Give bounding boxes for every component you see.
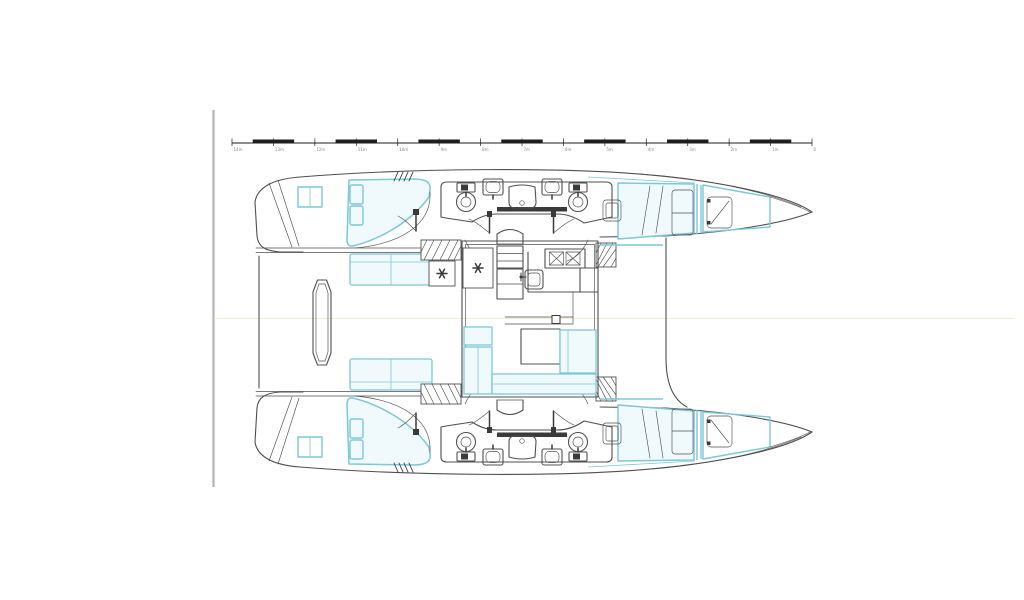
boat-floorplan-canvas: Catamaran sailboat deck and accommodatio… (0, 0, 1024, 600)
ruler-segment (501, 140, 522, 144)
ruler-label: 4m (648, 147, 655, 152)
galley-cabinets (497, 246, 523, 299)
fan-hatch (429, 261, 455, 286)
boarding-platform (313, 280, 331, 365)
ruler-label: 2m (731, 147, 738, 152)
ruler-label: 12m (316, 147, 325, 152)
aft-platform (259, 256, 331, 388)
fan-hatch (463, 248, 493, 288)
ruler-segment (750, 140, 771, 144)
half-wall (505, 292, 573, 324)
ruler-label: 3m (689, 147, 696, 152)
ruler-label: 10m (399, 147, 408, 152)
ruler-segment (336, 140, 357, 144)
ruler-segment (356, 140, 377, 144)
ruler-segment (273, 140, 294, 144)
stove-symbol (545, 249, 585, 268)
u-sofa (464, 327, 596, 394)
ruler-segment (771, 140, 792, 144)
ruler-label: 0 (814, 147, 817, 152)
ruler-segment (439, 140, 460, 144)
latch-box (552, 316, 560, 324)
ruler-segment (522, 140, 543, 144)
ruler-label: 13m (275, 147, 284, 152)
ruler-label: 5m (606, 147, 613, 152)
ruler-label: 9m (441, 147, 448, 152)
ruler-segment (584, 140, 605, 144)
ruler-segment (418, 140, 439, 144)
dining-table (521, 329, 560, 364)
ruler-label: 6m (565, 147, 572, 152)
ruler-label: 1m (772, 147, 779, 152)
ruler-segment (667, 140, 688, 144)
ruler-label: 14m (234, 147, 243, 152)
forward-beam (666, 238, 687, 407)
ruler-segment (605, 140, 626, 144)
ruler-label: 8m (482, 147, 489, 152)
galley-counter (520, 252, 599, 292)
hull-port (255, 170, 812, 285)
ruler-label: 11m (358, 147, 367, 152)
ruler-label: 7m (524, 147, 531, 152)
ruler-segment (688, 140, 709, 144)
ruler-segment (253, 140, 274, 144)
scale-ruler: 14m13m12m11m10m9m8m7m6m5m4m3m2m1m0 (232, 139, 817, 153)
